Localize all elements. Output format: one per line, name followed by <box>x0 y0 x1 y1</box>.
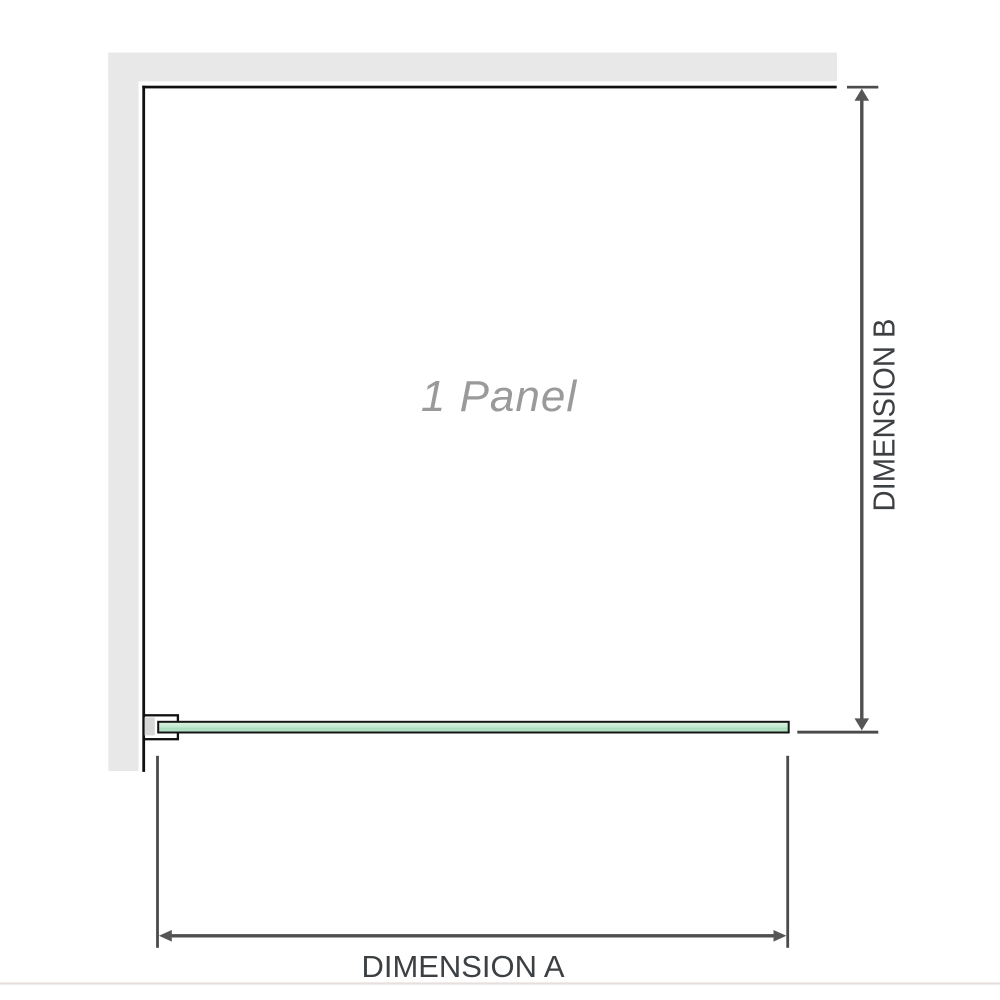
svg-text:DIMENSION B: DIMENSION B <box>867 319 902 512</box>
svg-text:DIMENSION A: DIMENSION A <box>362 949 565 984</box>
svg-text:1 Panel: 1 Panel <box>421 372 577 421</box>
